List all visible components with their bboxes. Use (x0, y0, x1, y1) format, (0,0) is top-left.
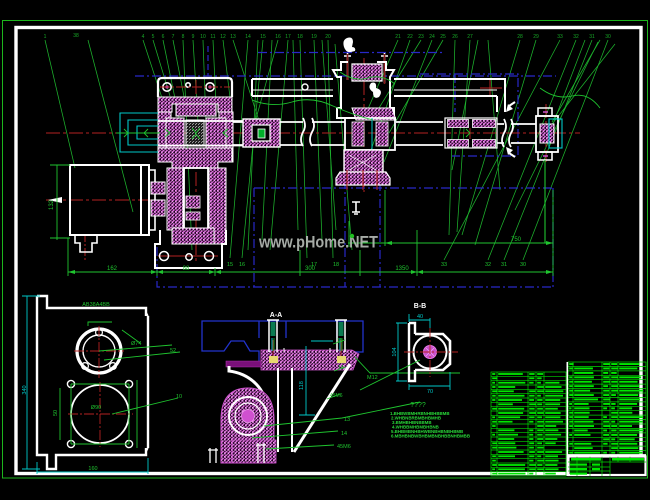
svg-text:118: 118 (299, 381, 305, 390)
svg-text:7: 7 (172, 34, 175, 40)
svg-text:10: 10 (176, 394, 182, 400)
svg-text:300: 300 (305, 266, 316, 272)
svg-text:32: 32 (573, 34, 579, 40)
svg-text:22: 22 (407, 34, 413, 40)
svg-text:21: 21 (395, 34, 401, 40)
svg-text:A-A: A-A (270, 312, 282, 319)
svg-text:32: 32 (485, 262, 491, 268)
svg-text:5: 5 (152, 34, 155, 40)
svg-text:15: 15 (227, 262, 233, 268)
svg-text:25: 25 (440, 34, 446, 40)
svg-text:30: 30 (605, 34, 611, 40)
svg-text:16: 16 (275, 34, 281, 40)
svg-text:19: 19 (311, 34, 317, 40)
svg-text:340: 340 (22, 385, 28, 394)
svg-text:17: 17 (285, 34, 291, 40)
svg-text:28: 28 (517, 34, 523, 40)
svg-text:4: 4 (142, 34, 145, 40)
svg-text:M12: M12 (367, 375, 378, 381)
svg-text:B-B: B-B (414, 303, 426, 310)
svg-text:8: 8 (182, 34, 185, 40)
svg-text:AB38A4BB: AB38A4BB (82, 302, 110, 308)
svg-text:Ø74: Ø74 (131, 341, 141, 347)
svg-text:23: 23 (418, 34, 424, 40)
svg-text:160: 160 (88, 466, 97, 472)
svg-text:33: 33 (441, 262, 447, 268)
svg-text:750: 750 (511, 237, 522, 243)
svg-text:14: 14 (341, 431, 347, 437)
svg-text:13: 13 (344, 417, 350, 423)
svg-text:1350: 1350 (395, 266, 409, 272)
svg-text:26: 26 (452, 34, 458, 40)
svg-text:Ø90: Ø90 (91, 405, 101, 411)
svg-text:14: 14 (245, 34, 251, 40)
svg-text:11: 11 (210, 34, 215, 40)
svg-text:9: 9 (192, 34, 195, 40)
svg-text:30: 30 (520, 262, 526, 268)
svg-text:www.pHome.NET: www.pHome.NET (258, 234, 378, 252)
svg-text:38: 38 (73, 33, 79, 39)
svg-text:52: 52 (170, 348, 176, 354)
svg-text:31: 31 (589, 34, 595, 40)
svg-text:132: 132 (49, 199, 55, 210)
svg-text:15: 15 (260, 34, 266, 40)
svg-text:6: 6 (162, 34, 165, 40)
svg-text:1: 1 (44, 34, 47, 40)
svg-text:13: 13 (230, 34, 236, 40)
svg-text:29: 29 (533, 34, 539, 40)
svg-text:33: 33 (557, 34, 563, 40)
svg-text:104: 104 (392, 347, 398, 356)
svg-text:27: 27 (467, 34, 473, 40)
svg-text:18: 18 (333, 262, 339, 268)
svg-text:45M6: 45M6 (330, 393, 343, 399)
svg-text:10: 10 (200, 34, 206, 40)
svg-text:24: 24 (429, 34, 435, 40)
svg-text:40: 40 (417, 314, 423, 320)
svg-text:88: 88 (183, 266, 190, 272)
svg-text:50: 50 (53, 410, 59, 416)
svg-text:????: ???? (410, 402, 426, 409)
svg-text:12: 12 (220, 34, 226, 40)
svg-text:16: 16 (239, 262, 245, 268)
svg-text:18: 18 (297, 34, 303, 40)
svg-text:20: 20 (325, 34, 331, 40)
svg-text:6.MBHBNBWBHBMBNBHBBNHBMBB: 6.MBHBNBWBHBMBNBHBBNHBMBB (391, 434, 470, 439)
svg-text:45M6: 45M6 (337, 444, 351, 450)
svg-text:162: 162 (107, 266, 118, 272)
svg-text:70: 70 (427, 389, 433, 395)
svg-text:31: 31 (501, 262, 507, 268)
